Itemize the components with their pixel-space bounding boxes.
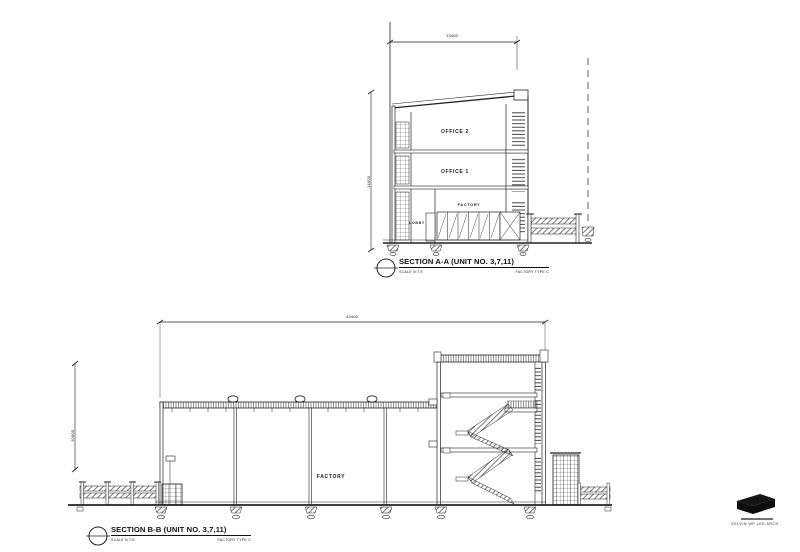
- drawing-sheet: OFFICE 2 OFFICE 1 FACTORY LOBBY FACTORY …: [0, 0, 800, 552]
- section-linework: [0, 0, 800, 552]
- firm-logo-icon: [737, 494, 775, 519]
- section-b-drawing: [68, 320, 612, 545]
- section-a-drawing: [368, 22, 594, 277]
